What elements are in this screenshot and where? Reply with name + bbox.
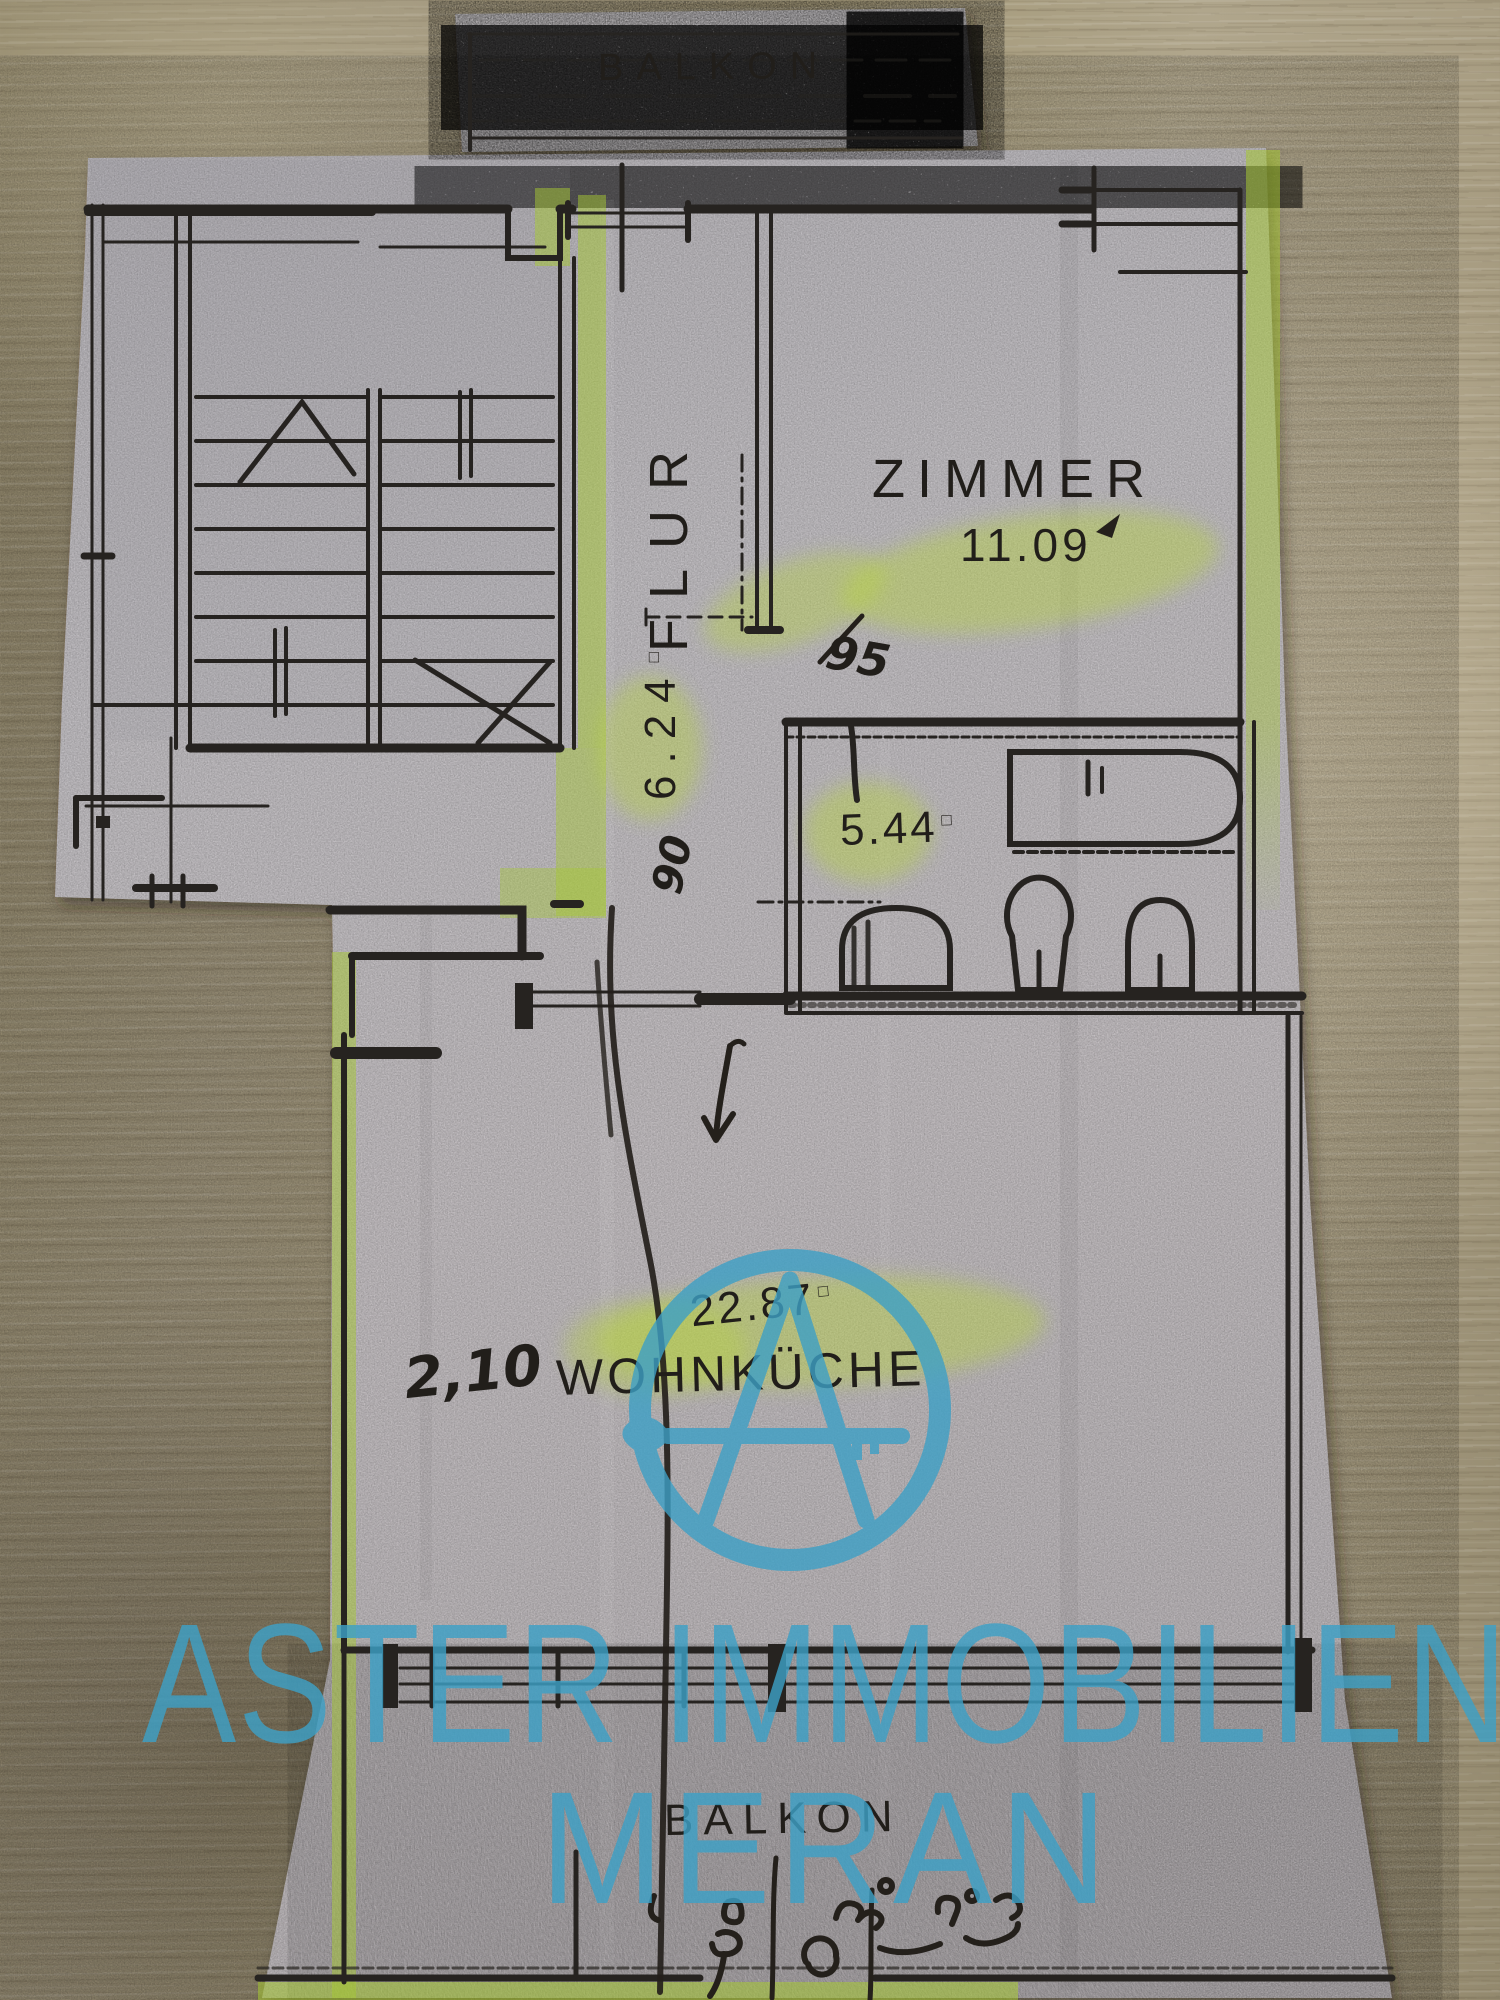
floorplan-drawing — [0, 0, 1500, 2000]
scene: BALKON ZIMMER 11.09 FLUR 6.24□ 5.44□ 22.… — [0, 0, 1500, 2000]
photo-of-floorplan: { "floorplan": { "balcony_top_label": "B… — [0, 0, 1500, 2000]
